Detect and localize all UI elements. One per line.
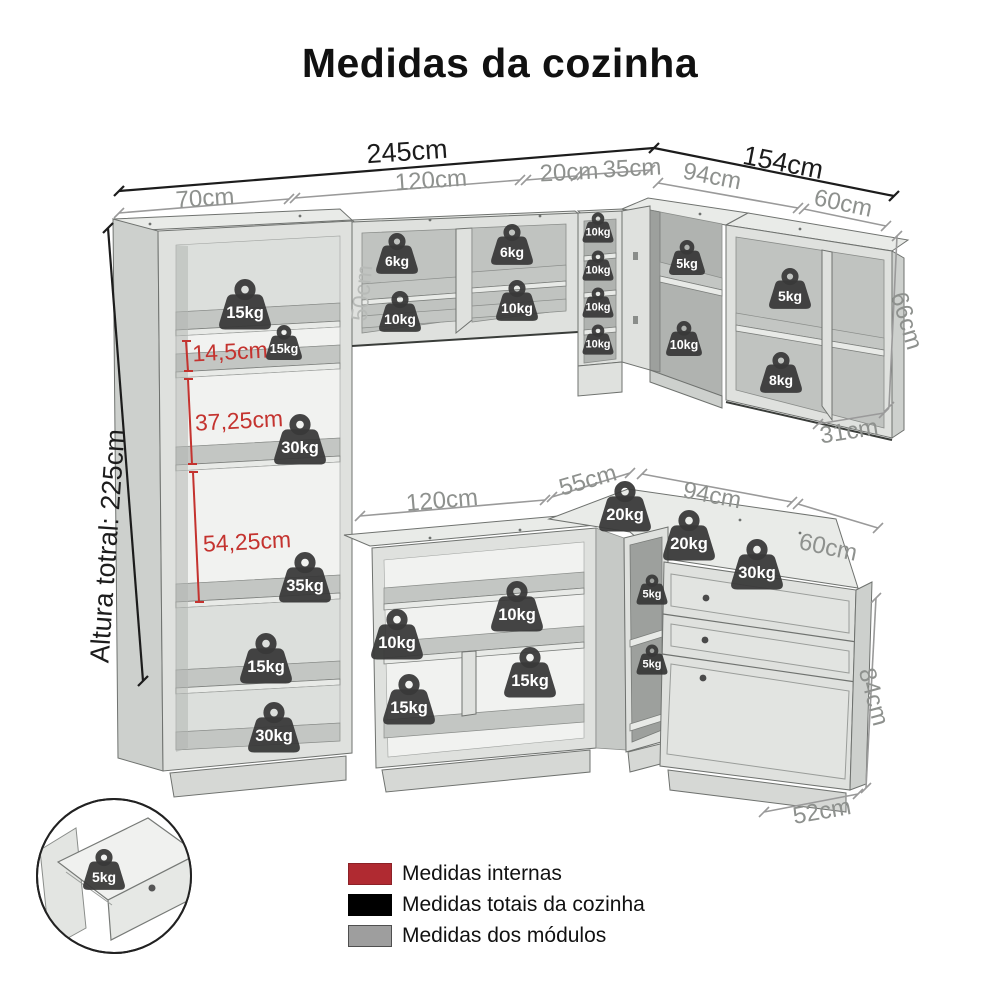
weight-capacity-badge: 30kg [728, 539, 786, 591]
weight-capacity-badge: 10kg [488, 581, 546, 633]
weight-capacity-badge: 10kg [377, 291, 424, 333]
weight-capacity-badge: 20kg [660, 510, 718, 562]
legend-label: Medidas internas [402, 862, 562, 886]
weight-capacity-badge: 5kg [635, 645, 670, 676]
weight-capacity-badge: 6kg [489, 224, 536, 266]
dimension-total-left: 245cm [365, 134, 448, 171]
weight-capacity-badge: 15kg [501, 647, 559, 699]
kitchen-measurements-diagram: Medidas da cozinha [0, 0, 1000, 1000]
weight-capacity-badge: 35kg [276, 552, 334, 604]
weight-capacity-badge: 20kg [596, 481, 654, 533]
wall-cabinets-right [622, 198, 908, 440]
weight-capacity-badge: 30kg [245, 702, 303, 754]
dimension-module: 70cm [175, 183, 235, 215]
weight-capacity-badge: 5kg [81, 849, 128, 891]
weight-capacity-badge: 5kg [767, 268, 814, 310]
weight-capacity-badge: 15kg [237, 633, 295, 685]
weight-capacity-badge: 10kg [581, 251, 616, 282]
legend-item-total: Medidas totais da cozinha [348, 893, 645, 917]
legend-label: Medidas dos módulos [402, 924, 606, 948]
weight-capacity-badge: 8kg [758, 352, 805, 394]
weight-capacity-badge: 15kg [216, 279, 274, 331]
weight-capacity-badge: 10kg [494, 280, 541, 322]
legend-item-modules: Medidas dos módulos [348, 924, 645, 948]
dimension-module: 120cm [394, 165, 468, 198]
dimension-module: 20cm [539, 157, 599, 188]
weight-capacity-badge: 10kg [581, 288, 616, 319]
kitchen-illustration [0, 0, 1000, 1000]
legend-swatch-black [348, 894, 392, 916]
dimension-module: 35cm [602, 153, 662, 184]
weight-capacity-badge: 6kg [374, 233, 421, 275]
weight-capacity-badge: 10kg [664, 321, 704, 357]
weight-capacity-badge: 10kg [368, 609, 426, 661]
weight-capacity-badge: 15kg [264, 325, 304, 361]
legend-item-internal: Medidas internas [348, 862, 645, 886]
dimension-internal: 14,5cm [192, 337, 269, 368]
legend-label: Medidas totais da cozinha [402, 893, 645, 917]
legend-swatch-red [348, 863, 392, 885]
legend: Medidas internas Medidas totais da cozin… [348, 862, 645, 955]
legend-swatch-gray [348, 925, 392, 947]
weight-capacity-badge: 10kg [581, 213, 616, 244]
weight-capacity-badge: 10kg [581, 325, 616, 356]
weight-capacity-badge: 30kg [271, 414, 329, 466]
weight-capacity-badge: 15kg [380, 674, 438, 726]
weight-capacity-badge: 5kg [667, 240, 707, 276]
weight-capacity-badge: 5kg [635, 575, 670, 606]
